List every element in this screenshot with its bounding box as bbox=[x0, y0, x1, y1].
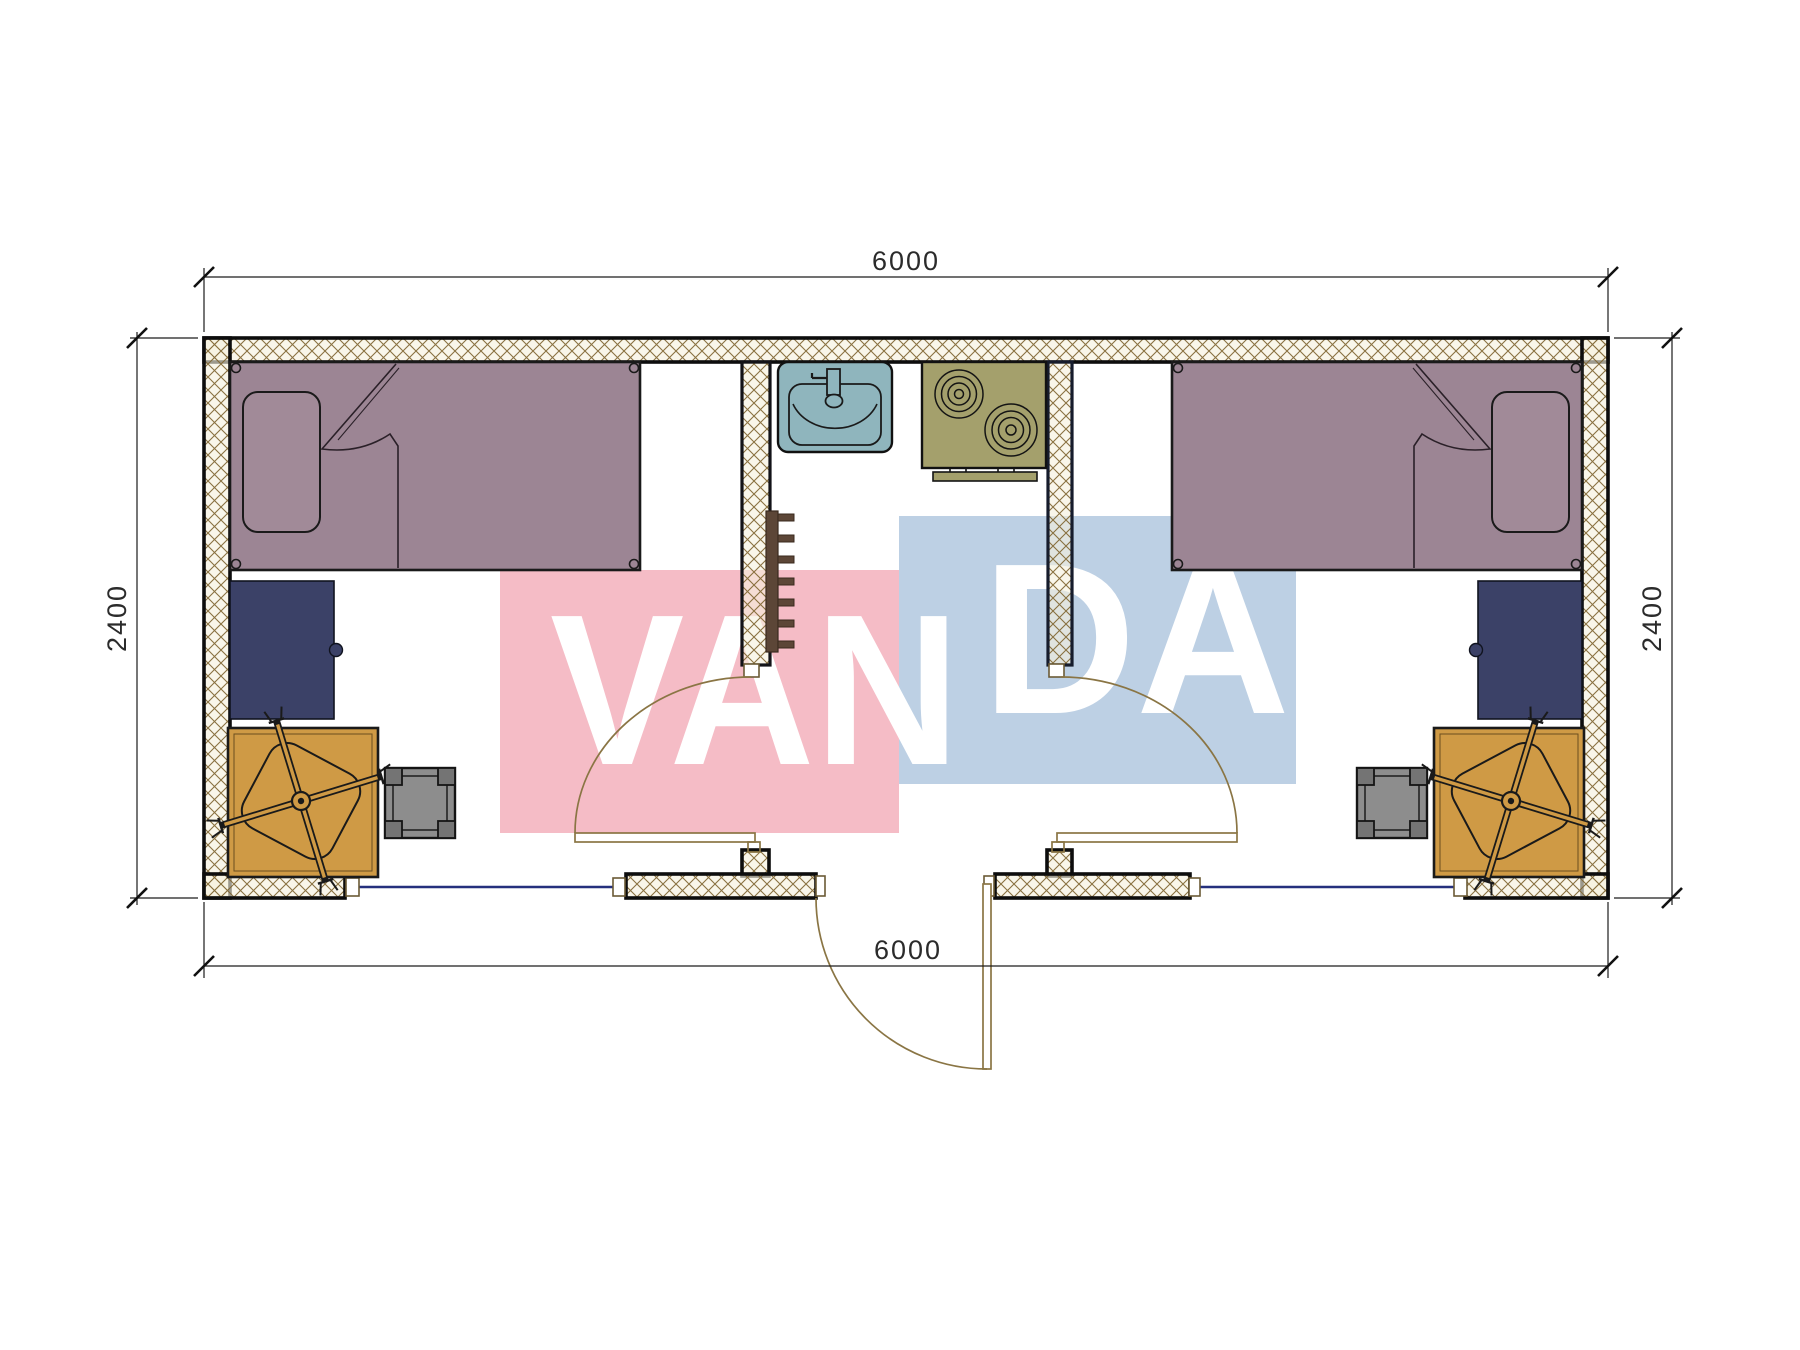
dimension-bottom-label: 6000 bbox=[874, 935, 942, 965]
entrance-door-swing bbox=[816, 898, 987, 1069]
wall-bottom-segment-right bbox=[995, 874, 1190, 898]
basin-faucet bbox=[827, 369, 840, 395]
desk-left-top bbox=[230, 581, 334, 719]
dimension-left: 2400 bbox=[102, 328, 198, 908]
table-left bbox=[201, 701, 402, 902]
bed-post bbox=[1572, 364, 1581, 373]
bed-left-pillow bbox=[243, 392, 320, 532]
bed-right-pillow bbox=[1492, 392, 1569, 532]
dimension-top: 6000 bbox=[194, 246, 1618, 332]
wall-bottom-stub-left bbox=[742, 850, 769, 876]
stool-left bbox=[385, 768, 455, 838]
floor-plan-page: VAN DA bbox=[0, 0, 1800, 1350]
bed-right bbox=[1172, 362, 1582, 570]
bed-left bbox=[230, 362, 640, 570]
basin-drain bbox=[826, 395, 843, 408]
bed-post bbox=[1572, 560, 1581, 569]
window-right-jamb-a bbox=[1189, 878, 1200, 896]
window-left-jamb-a bbox=[346, 878, 359, 896]
stool-leg bbox=[1357, 768, 1374, 785]
stool-leg bbox=[438, 768, 455, 785]
stool-leg bbox=[1357, 821, 1374, 838]
window-left-jamb-b bbox=[613, 878, 625, 896]
stool-leg bbox=[385, 821, 402, 838]
bed-post bbox=[1174, 560, 1183, 569]
coat-rail-bar bbox=[766, 511, 778, 652]
wall-bottom-stub-right bbox=[1047, 850, 1072, 876]
bed-post bbox=[630, 560, 639, 569]
desk-left-handle bbox=[330, 644, 343, 657]
entrance-door bbox=[816, 884, 991, 1069]
cooktop-control-bar bbox=[933, 472, 1037, 481]
window-right-jamb-b bbox=[1454, 878, 1467, 896]
floor-plan-drawing: VAN DA bbox=[0, 0, 1800, 1350]
room-door-right-leaf bbox=[1057, 833, 1237, 842]
stool-leg bbox=[385, 768, 402, 785]
dimension-left-label: 2400 bbox=[102, 584, 132, 652]
partition-left-jamb bbox=[744, 664, 759, 677]
room-door-left-leaf bbox=[575, 833, 755, 842]
stool-leg bbox=[438, 821, 455, 838]
wall-bottom-segment-left bbox=[626, 874, 816, 898]
entrance-door-leaf bbox=[983, 884, 991, 1069]
windows bbox=[346, 878, 1467, 896]
cooktop bbox=[922, 362, 1046, 481]
wall-left bbox=[204, 338, 230, 898]
desk-right-handle bbox=[1470, 644, 1483, 657]
partition-wall-right bbox=[1048, 362, 1072, 665]
dimension-bottom: 6000 bbox=[194, 902, 1618, 978]
bed-post bbox=[232, 364, 241, 373]
wash-basin bbox=[778, 362, 892, 452]
stool-leg bbox=[1410, 768, 1427, 785]
wall-right bbox=[1582, 338, 1608, 898]
bed-post bbox=[232, 560, 241, 569]
bed-post bbox=[1174, 364, 1183, 373]
table-right bbox=[1411, 701, 1612, 902]
desk-left bbox=[230, 581, 343, 719]
dimension-top-label: 6000 bbox=[872, 246, 940, 276]
bed-post bbox=[630, 364, 639, 373]
dimension-right-label: 2400 bbox=[1637, 584, 1667, 652]
wall-top bbox=[204, 338, 1608, 362]
dimension-right: 2400 bbox=[1614, 328, 1682, 908]
desk-right-top bbox=[1478, 581, 1582, 719]
entrance-jamb-left bbox=[816, 876, 825, 896]
stool-right bbox=[1357, 768, 1427, 838]
stool-leg bbox=[1410, 821, 1427, 838]
desk-right bbox=[1470, 581, 1583, 719]
partition-right-jamb bbox=[1049, 664, 1064, 677]
